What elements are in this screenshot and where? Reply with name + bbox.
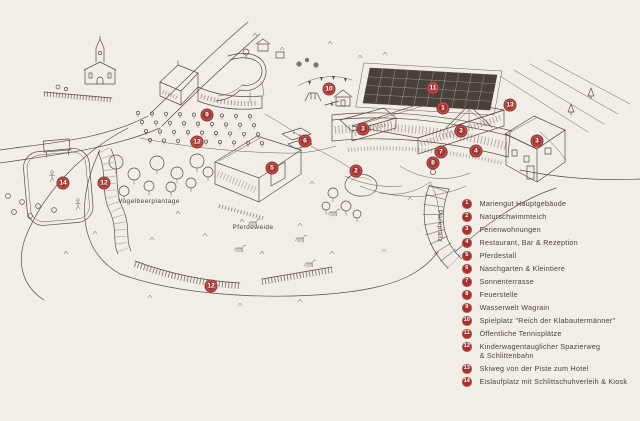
legend-number: 2 (462, 212, 472, 222)
grass-tuft-icon (408, 197, 412, 200)
resort-map-page: Vogelbeerplantage Pferdeweide Parkplatz … (0, 0, 640, 421)
grass-tuft-icon (298, 223, 302, 226)
legend-item-7: 7Sonnenterrasse (462, 277, 627, 287)
plant-icon (248, 115, 251, 118)
berry-garden-rows (136, 111, 263, 147)
legend-number: 13 (462, 364, 472, 374)
grass-tuft-icon (298, 299, 302, 302)
grass-tuft-icon (382, 249, 386, 252)
grass-tuft-icon (260, 251, 264, 254)
parkplatz-label: Parkplatz (436, 210, 443, 243)
parking-illustration (424, 186, 462, 268)
legend-label: Feuerstelle (480, 290, 518, 300)
plant-icon (168, 121, 171, 124)
grass-tuft-icon (280, 47, 284, 50)
legend-item-5: 5Pferdestall (462, 251, 627, 261)
legend-label: Spielplatz "Reich der Klabautermänner" (480, 316, 616, 326)
tree-icon (166, 182, 176, 192)
left-shrubs (6, 194, 57, 219)
plant-icon (232, 141, 235, 144)
shrub-icon (12, 210, 17, 215)
horse-barn-illustration (215, 136, 301, 218)
grass-tuft-icon (148, 295, 152, 298)
plant-icon (154, 121, 157, 124)
legend-item-13: 13Skiweg von der Piste zum Hotel (462, 364, 627, 374)
legend-label: Öffentliche Tennisplätze (480, 329, 562, 339)
legend-label: Wasserwelt Wagrain (480, 303, 550, 313)
legend-number: 5 (462, 251, 472, 261)
tree-icon (144, 181, 154, 191)
grass-tuft-icon (203, 233, 207, 236)
legend-item-4: 4Restaurant, Bar & Rezeption (462, 238, 627, 248)
plant-icon (234, 114, 237, 117)
grass-tuft-icon (253, 33, 257, 36)
legend-label: Naschgarten & Kleintiere (480, 264, 566, 274)
church-illustration (84, 36, 116, 84)
legend-item-9: 9Wasserwelt Wagrain (462, 303, 627, 313)
plant-icon (164, 112, 167, 115)
shrub-icon (20, 200, 25, 205)
shrub-icon (36, 204, 41, 209)
legend-number: 8 (462, 290, 472, 300)
tree-icon (353, 210, 361, 218)
skater-icon (77, 199, 80, 202)
legend-number: 3 (462, 225, 472, 235)
plant-icon (260, 142, 263, 145)
horse-figures (235, 209, 341, 267)
tree-icon (322, 202, 330, 210)
grass-tuft-icon (150, 237, 154, 240)
plant-icon (172, 130, 175, 133)
plant-icon (214, 131, 217, 134)
plant-icon (144, 129, 147, 132)
legend-label: Pferdestall (480, 251, 517, 261)
tree-icon (341, 201, 351, 211)
legend-label: Kinderwagentauglicher Spazierweg & Schli… (480, 342, 601, 361)
tree-icon (186, 178, 196, 188)
tree-icon (203, 167, 213, 177)
legend-label: Mariengut Hauptgebäude (480, 199, 567, 209)
plant-icon (252, 124, 255, 127)
horse-icon (329, 209, 341, 216)
legend: 1Mariengut Hauptgebäude2Naturschwimmteic… (462, 199, 627, 390)
plant-icon (206, 113, 209, 116)
legend-item-6: 6Naschgarten & Kleintiere (462, 264, 627, 274)
legend-item-3: 3Ferienwohnungen (462, 225, 627, 235)
skater-icon (51, 171, 54, 174)
legend-label: Ferienwohnungen (480, 225, 541, 235)
horse-icon (305, 260, 317, 267)
plant-icon (200, 131, 203, 134)
plant-icon (140, 120, 143, 123)
skater-body (76, 201, 81, 210)
legend-number: 7 (462, 277, 472, 287)
plant-icon (192, 113, 195, 116)
church-fence (44, 85, 112, 100)
shrub-icon (52, 208, 57, 213)
hotel-complex-illustration (332, 98, 565, 197)
plant-icon (196, 122, 199, 125)
ski-slope-illustration (500, 60, 630, 132)
pferdeweide-label: Pferdeweide (212, 224, 294, 231)
plant-icon (186, 131, 189, 134)
legend-item-12: 12Kinderwagentauglicher Spazierweg & Sch… (462, 342, 627, 361)
plant-icon (218, 140, 221, 143)
plant-icon (256, 133, 259, 136)
grass-tuft-icon (328, 41, 332, 44)
grass-tuft-icon (176, 211, 180, 214)
grass-tuft-icon (310, 181, 314, 184)
legend-item-8: 8Feuerstelle (462, 290, 627, 300)
legend-number: 10 (462, 316, 472, 326)
tennis-courts-illustration (356, 63, 502, 115)
plant-icon (210, 122, 213, 125)
legend-label: Restaurant, Bar & Rezeption (480, 238, 578, 248)
plant-icon (182, 122, 185, 125)
legend-label: Sonnenterrasse (480, 277, 534, 287)
plant-icon (178, 113, 181, 116)
tree-icon (328, 188, 338, 198)
legend-label: Skiweg von der Piste zum Hotel (480, 364, 589, 374)
skater-body (50, 173, 55, 182)
legend-item-14: 14Eislaufplatz mit Schlittschuhverleih &… (462, 377, 627, 387)
legend-number: 11 (462, 329, 472, 339)
waterworld-illustration (160, 53, 266, 109)
legend-item-1: 1Mariengut Hauptgebäude (462, 199, 627, 209)
grass-tuft-icon (93, 231, 97, 234)
animal-pens (282, 128, 312, 149)
legend-number: 4 (462, 238, 472, 248)
grass-tuft-icon (238, 303, 242, 306)
legend-number: 14 (462, 377, 472, 387)
ice-rink-illustration (21, 137, 94, 226)
legend-item-10: 10Spielplatz "Reich der Klabautermänner" (462, 316, 627, 326)
grass-tuft-icon (358, 55, 362, 58)
plant-icon (238, 123, 241, 126)
legend-number: 12 (462, 342, 472, 352)
horse-icon (296, 235, 308, 242)
legend-number: 6 (462, 264, 472, 274)
tree-icon (119, 186, 129, 196)
plant-icon (136, 111, 139, 114)
vogelbeerplantage-label: Vogelbeerplantage (104, 198, 194, 205)
plant-icon (220, 114, 223, 117)
legend-item-11: 11Öffentliche Tennisplätze (462, 329, 627, 339)
plant-icon (204, 140, 207, 143)
horse-icon (235, 245, 247, 252)
grass-tuft-icon (383, 52, 387, 55)
plant-icon (228, 132, 231, 135)
tree-icon (171, 167, 183, 179)
plant-icon (224, 123, 227, 126)
plant-icon (190, 140, 193, 143)
legend-number: 1 (462, 199, 472, 209)
tree-icon (150, 156, 164, 170)
grass-tuft-icon (240, 219, 244, 222)
plant-icon (176, 139, 179, 142)
legend-label: Eislaufplatz mit Schlittschuhverleih & K… (480, 377, 628, 387)
legend-number: 9 (462, 303, 472, 313)
legend-label: Naturschwimmteich (480, 212, 547, 222)
tree-icon (190, 154, 204, 168)
shrub-icon (6, 194, 11, 199)
plant-icon (162, 139, 165, 142)
legend-item-2: 2Naturschwimmteich (462, 212, 627, 222)
orchard-trees (109, 154, 361, 222)
plant-icon (158, 130, 161, 133)
tree-icon (128, 168, 140, 180)
grass-tuft-icon (330, 251, 334, 254)
meadow-fences (135, 261, 332, 286)
playground-illustration (296, 58, 352, 106)
plant-icon (242, 132, 245, 135)
grass-tuft-icon (64, 251, 68, 254)
small-cabins (243, 39, 284, 59)
